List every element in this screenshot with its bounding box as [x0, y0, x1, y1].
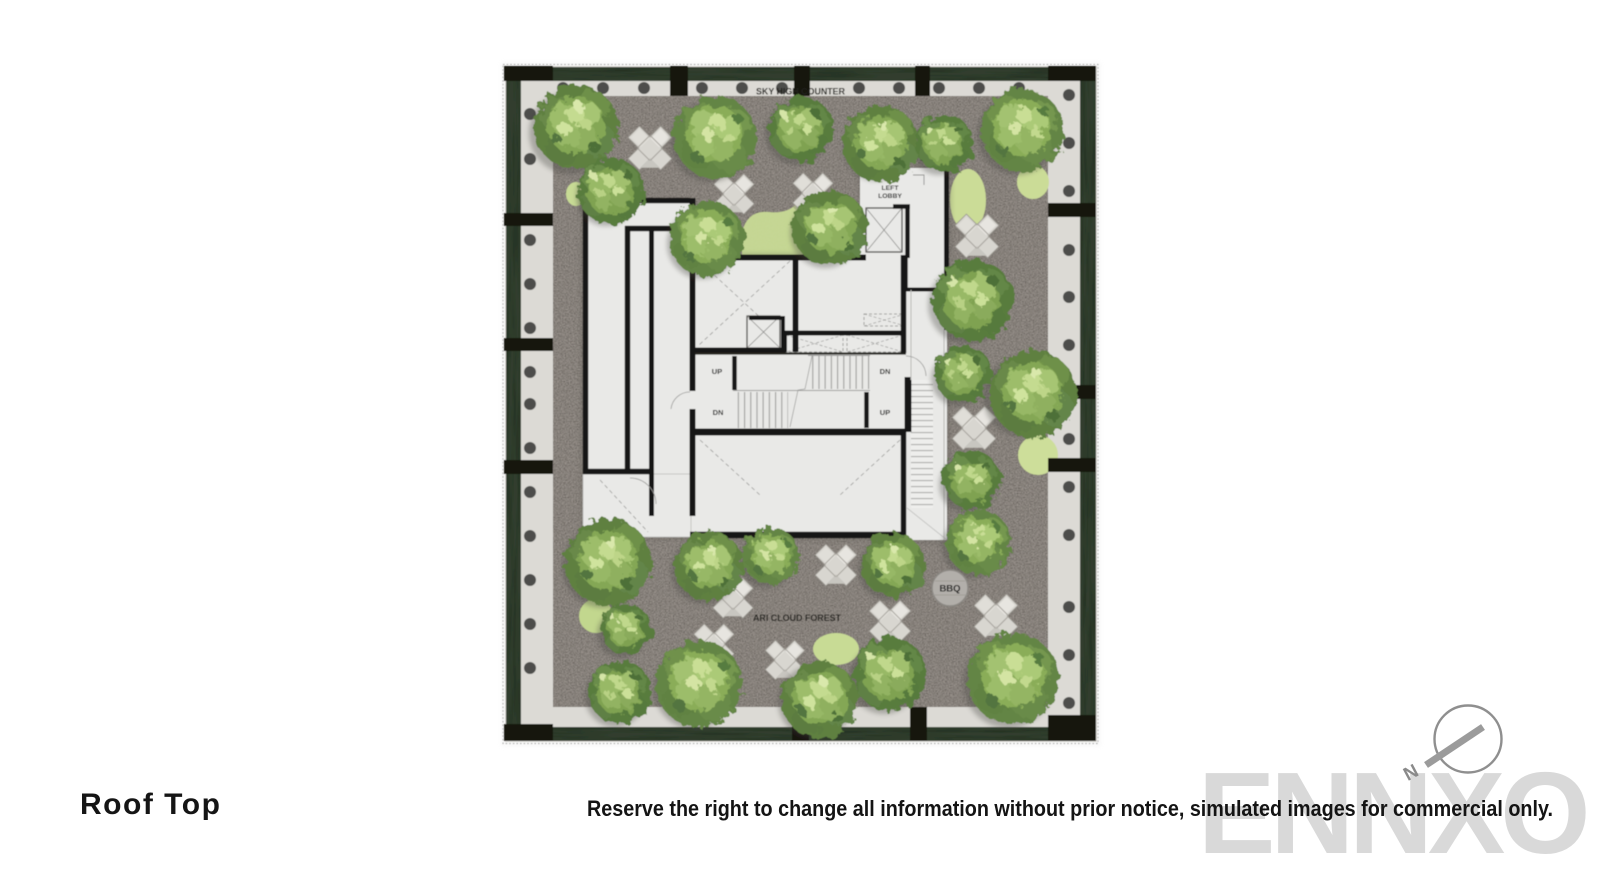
svg-text:UP: UP	[712, 367, 722, 376]
svg-text:UP: UP	[880, 408, 890, 417]
svg-text:DN: DN	[880, 367, 891, 376]
svg-text:LOBBY: LOBBY	[878, 193, 902, 200]
svg-text:DN: DN	[713, 408, 724, 417]
svg-text:LEFT: LEFT	[882, 185, 900, 192]
svg-text:BBQ: BBQ	[939, 584, 960, 595]
svg-text:ARI CLOUD FOREST: ARI CLOUD FOREST	[753, 613, 841, 623]
svg-text:Reserve the right to change al: Reserve the right to change all informat…	[587, 796, 1553, 821]
svg-text:Roof Top: Roof Top	[80, 788, 221, 821]
svg-text:SKY HIGH COUNTER: SKY HIGH COUNTER	[756, 87, 845, 97]
